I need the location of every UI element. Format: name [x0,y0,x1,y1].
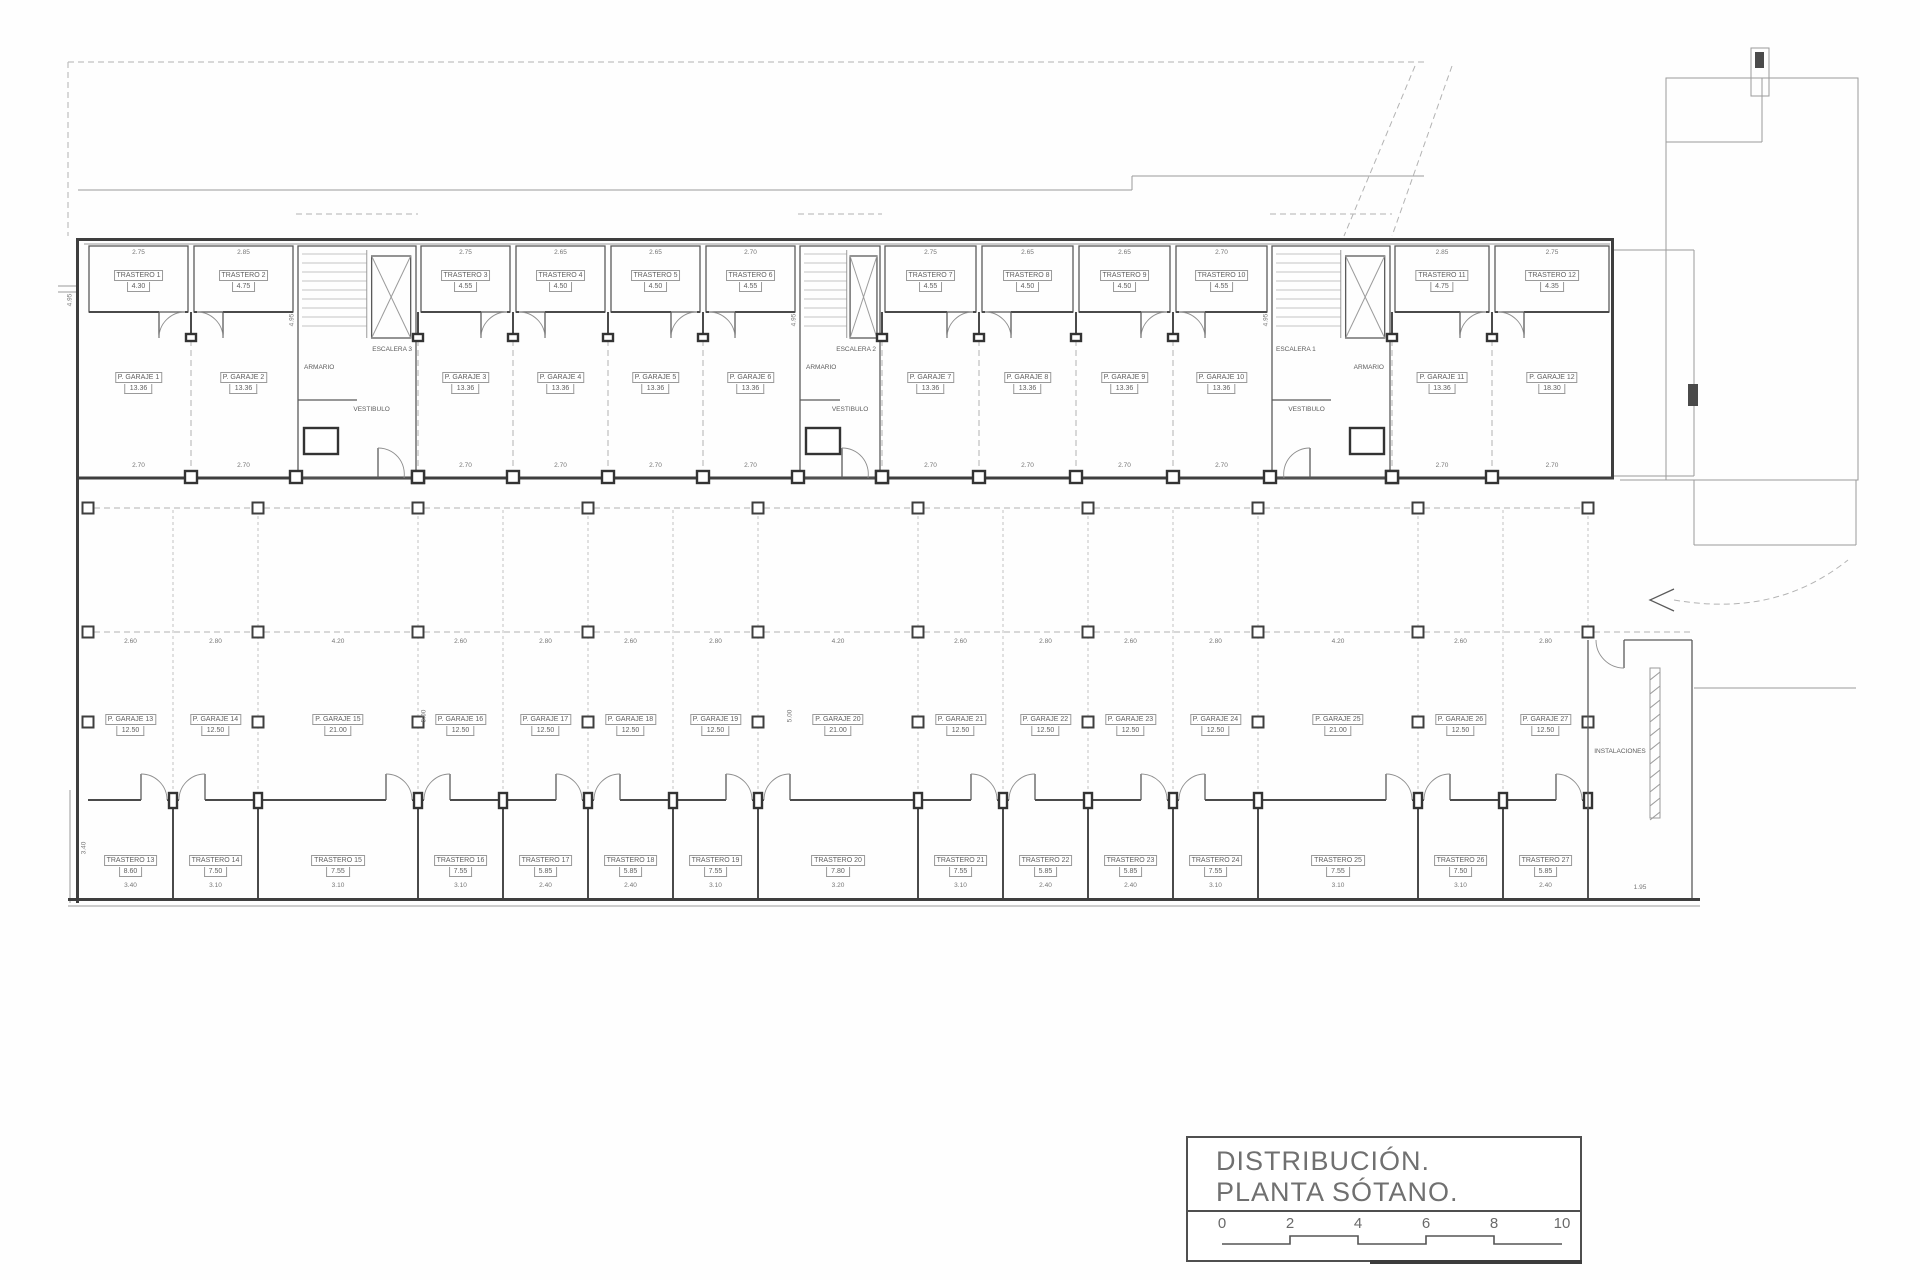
trastero-room [1495,246,1609,312]
stair-closet [806,428,840,454]
stair-door-arc [1284,448,1310,478]
door-arc [1424,774,1450,800]
trastero-room [611,246,700,312]
column [583,627,594,638]
column [1583,503,1594,514]
bottom-wall-pilaster [973,471,985,483]
title-block: DISTRIBUCIÓN. PLANTA SÓTANO. 0246810 [1186,1136,1582,1262]
hatch-line [1650,798,1660,806]
trastero-room [885,246,976,312]
door-arc [179,774,205,800]
floor-plan-canvas: TRASTERO 14.30P. GARAJE 113.362.752.70TR… [0,0,1920,1280]
column [913,627,924,638]
door-arc [1556,774,1582,800]
door-arc [519,312,545,338]
door-arc [726,774,752,800]
stub-pilaster [413,334,423,341]
trastero-room [516,246,605,312]
stair-closet [304,428,338,454]
door-arc [1386,774,1412,800]
column [253,717,264,728]
lower-wall-pilaster [999,793,1007,808]
hatch-line [1650,700,1660,708]
trastero-room [421,246,510,312]
title-block-accent [1370,1260,1582,1264]
ramp-edge-2 [1392,66,1452,236]
trastero-room [194,246,293,312]
door-arc [1141,774,1167,800]
stub-pilaster [186,334,196,341]
scale-tick-8: 8 [1490,1215,1498,1232]
door-arc [671,312,697,338]
door-arc [971,774,997,800]
door-arc [947,312,973,338]
column [1083,627,1094,638]
column [913,503,924,514]
column [1413,717,1424,728]
door-arc [481,312,507,338]
column [1413,627,1424,638]
column [753,503,764,514]
door-arc [1498,312,1524,338]
stair-closet [1350,428,1384,454]
door-arc [197,312,223,338]
door-arc [594,774,620,800]
bottom-wall-pilaster [185,471,197,483]
door-arc [141,774,167,800]
door-arc [985,312,1011,338]
column [83,717,94,728]
ramp-edge-1 [1344,66,1415,236]
hatch-line [1650,756,1660,764]
bottom-wall-pilaster [412,471,424,483]
lower-wall-pilaster [169,793,177,808]
column [413,717,424,728]
column [83,503,94,514]
scale-tick-10: 10 [1554,1215,1571,1232]
door-arc [709,312,735,338]
bottom-wall-pilaster [507,471,519,483]
column [413,503,424,514]
door-arc [1009,774,1035,800]
neighbor-shaft-core [1755,52,1764,68]
bottom-wall-pilaster [697,471,709,483]
hatch-line [1650,742,1660,750]
lower-wall-pilaster [1169,793,1177,808]
hatch-line [1650,784,1660,792]
column [583,503,594,514]
trastero-room [89,246,188,312]
stub-pilaster [1071,334,1081,341]
column [83,627,94,638]
lower-wall-pilaster [414,793,422,808]
drawing-title-line1: DISTRIBUCIÓN. [1216,1146,1580,1177]
floor-plan-drawing [0,0,1920,1280]
column [413,627,424,638]
hatch-line [1650,686,1660,694]
instalaciones-door-arc [1596,640,1624,668]
stub-pilaster [508,334,518,341]
door-arc [424,774,450,800]
stair-door-arc [842,448,868,478]
stub-pilaster [1487,334,1497,341]
door-arc [1141,312,1167,338]
door-arc [556,774,582,800]
bottom-wall-pilaster [1264,471,1276,483]
stub-pilaster [698,334,708,341]
bottom-wall-pilaster [1070,471,1082,483]
bottom-wall-pilaster [1167,471,1179,483]
drawing-title-line2: PLANTA SÓTANO. [1216,1177,1580,1208]
scale-tick-6: 6 [1422,1215,1430,1232]
column [253,503,264,514]
trastero-room [1176,246,1267,312]
hatch-line [1650,770,1660,778]
door-arc [1179,774,1205,800]
trastero-room [1395,246,1489,312]
hatch-line [1650,812,1660,820]
column [1083,717,1094,728]
lower-wall-pilaster [584,793,592,808]
trastero-room [706,246,795,312]
lower-wall-pilaster [669,793,677,808]
scale-bar: 0246810 [1188,1212,1580,1258]
column [1413,503,1424,514]
column [913,717,924,728]
entry-path-dashed [1674,560,1848,604]
bottom-wall-pilaster [602,471,614,483]
trastero-room [982,246,1073,312]
column [1083,503,1094,514]
right-porch-pier [1688,384,1698,406]
stub-pilaster [603,334,613,341]
lower-wall-pilaster [754,793,762,808]
column [1583,627,1594,638]
hatch-line [1650,728,1660,736]
stub-pilaster [1168,334,1178,341]
drawing-title: DISTRIBUCIÓN. PLANTA SÓTANO. [1188,1138,1580,1212]
lower-wall-pilaster [254,793,262,808]
entry-arrow-icon [1650,589,1674,611]
door-arc [386,774,412,800]
door-arc [1460,312,1486,338]
lower-wall-pilaster [1254,793,1262,808]
bottom-wall-pilaster [1486,471,1498,483]
door-arc [159,312,185,338]
lower-wall-pilaster [914,793,922,808]
hatch-line [1650,672,1660,680]
column [583,717,594,728]
column [753,627,764,638]
bottom-wall-pilaster [876,471,888,483]
bottom-wall-pilaster [1386,471,1398,483]
lower-wall-pilaster [499,793,507,808]
lower-wall-pilaster [1499,793,1507,808]
stub-pilaster [877,334,887,341]
column [753,717,764,728]
hatch-line [1650,714,1660,722]
scale-tick-4: 4 [1354,1215,1362,1232]
door-arc [764,774,790,800]
scale-bar-graphic [1188,1212,1580,1258]
stub-pilaster [1387,334,1397,341]
bottom-wall-pilaster [792,471,804,483]
lower-wall-pilaster [1414,793,1422,808]
lower-wall-pilaster [1084,793,1092,808]
bottom-wall-pilaster [290,471,302,483]
column [1253,627,1264,638]
stub-pilaster [974,334,984,341]
column [1253,717,1264,728]
scale-tick-2: 2 [1286,1215,1294,1232]
door-arc [1179,312,1205,338]
trastero-room [1079,246,1170,312]
scale-tick-0: 0 [1218,1215,1226,1232]
column [1253,503,1264,514]
stair-door-arc [378,448,404,478]
column [253,627,264,638]
